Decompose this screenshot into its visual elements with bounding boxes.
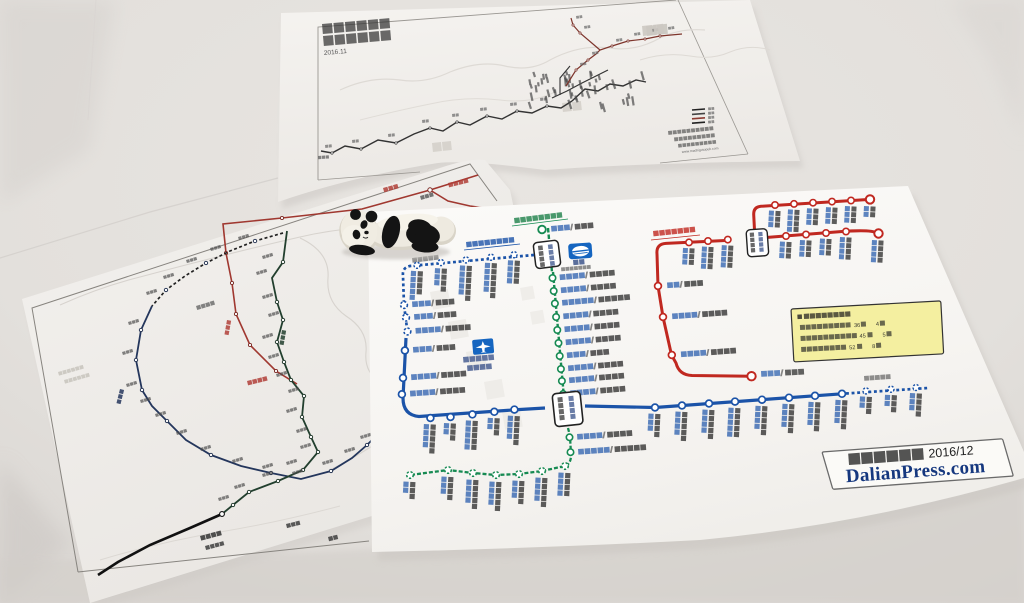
svg-text:4: 4	[876, 322, 879, 328]
svg-text:45: 45	[859, 333, 866, 339]
svg-text:52: 52	[849, 345, 856, 351]
svg-text:36: 36	[854, 323, 861, 329]
svg-text:8: 8	[872, 344, 875, 350]
svg-text:5: 5	[882, 332, 885, 338]
